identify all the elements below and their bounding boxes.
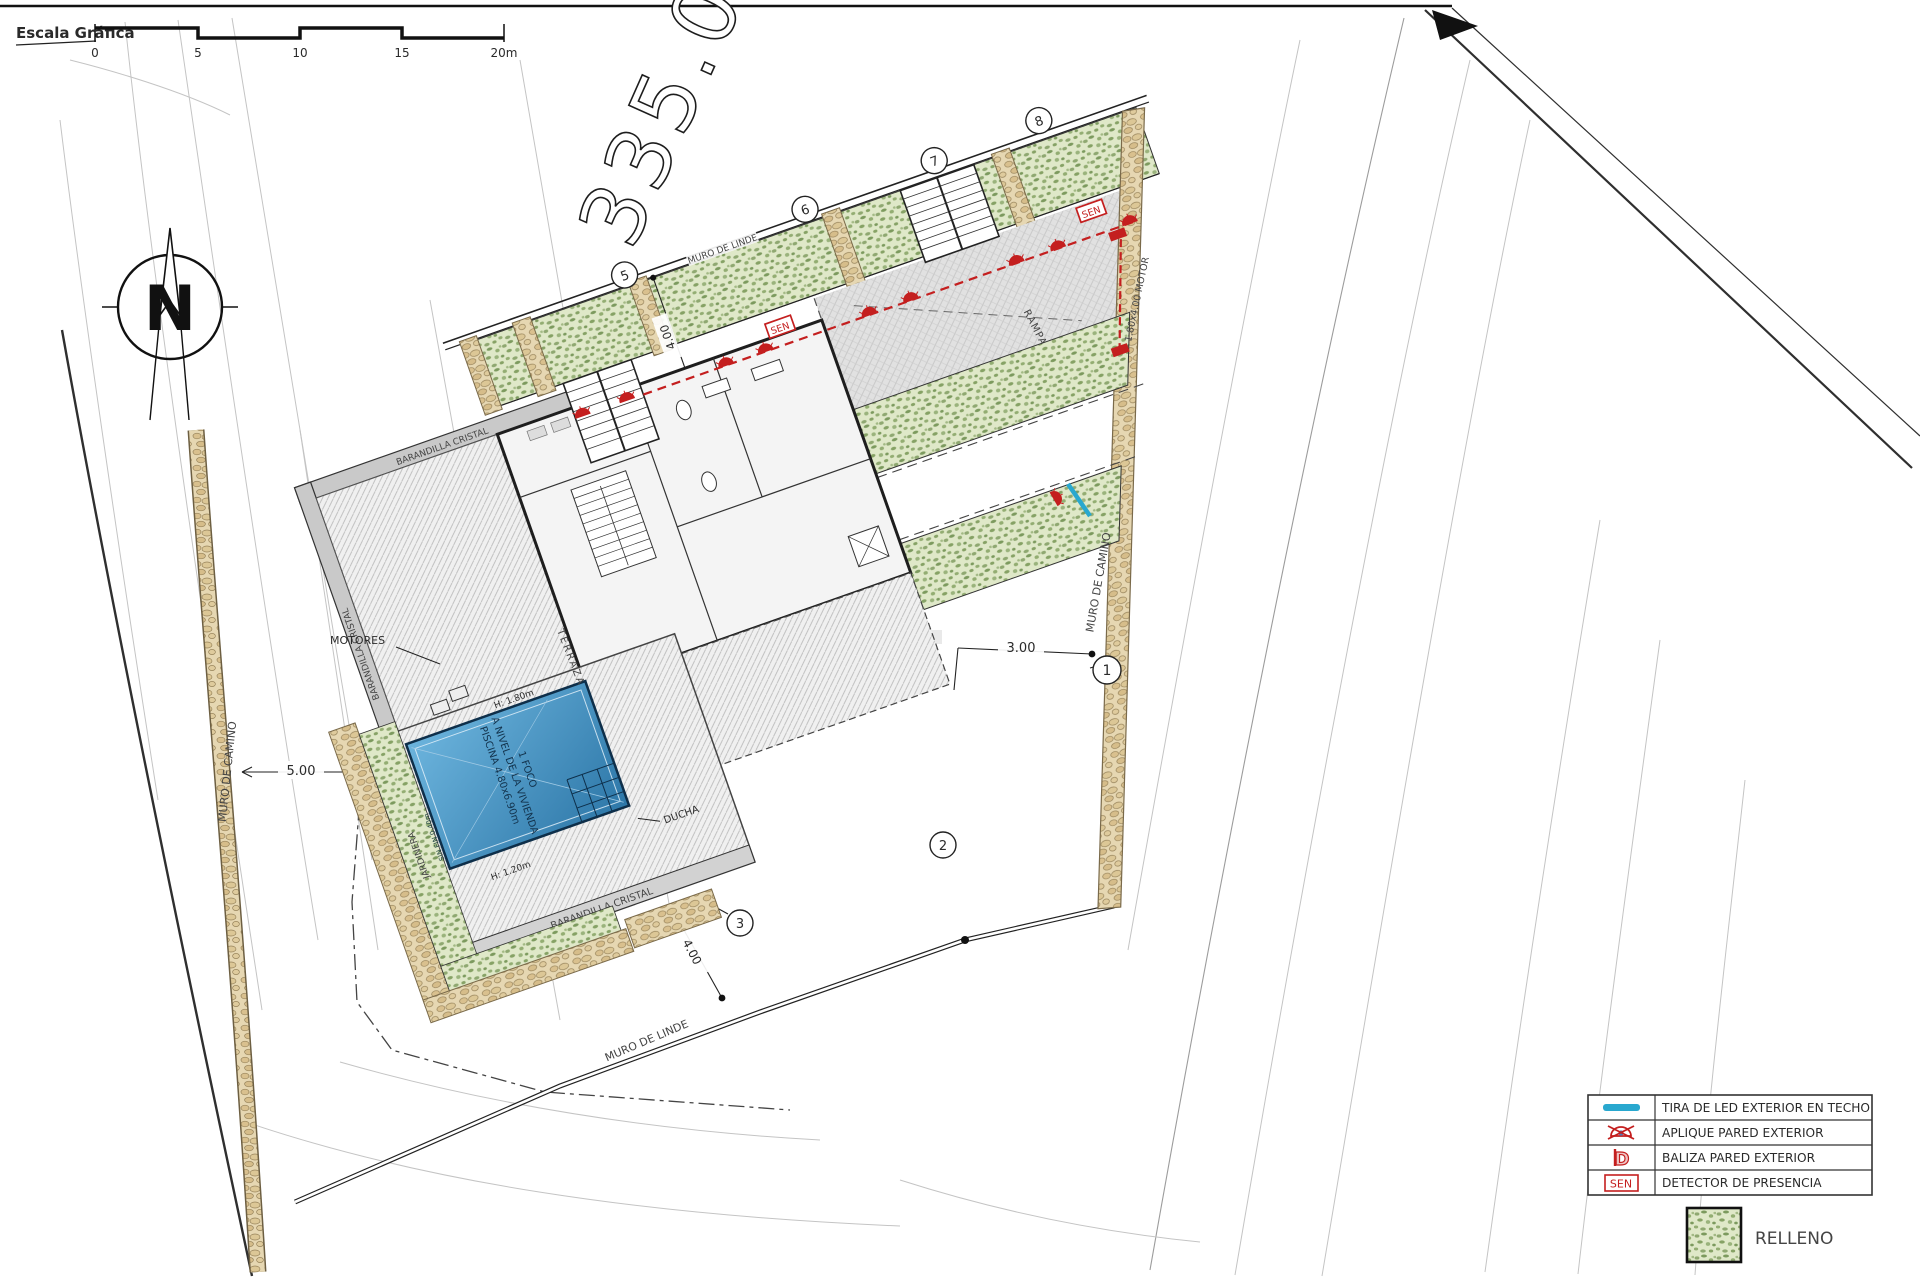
led-strip-icon <box>1603 1104 1640 1111</box>
dimension-right-strip: 3.00 <box>954 638 1095 690</box>
scale-tick-10: 10 <box>292 46 307 60</box>
scale-tick-5: 5 <box>194 46 202 60</box>
marker-2-number: 2 <box>939 839 947 854</box>
relleno-legend: RELLENO <box>1687 1208 1833 1262</box>
boundary-marker-2: 2 <box>930 832 956 858</box>
boundary-marker-8: 8 <box>1022 104 1055 137</box>
marker-1-number: 1 <box>1103 663 1112 679</box>
sen-icon-text: SEN <box>1610 1178 1632 1191</box>
motores-label: MOTORES <box>330 634 385 647</box>
scale-tick-0: 0 <box>91 46 99 60</box>
legend: TIRA DE LED EXTERIOR EN TECHO APLIQUE PA… <box>1588 1095 1872 1195</box>
plot-elevation-number: 335.0 <box>560 0 766 261</box>
legend-label-led: TIRA DE LED EXTERIOR EN TECHO <box>1661 1101 1870 1115</box>
boundary-marker-7: 7 <box>918 144 951 177</box>
beacon-icon-letter: D <box>1615 1149 1630 1170</box>
left-boundary-wall <box>196 430 258 1272</box>
building-frame: MURO DE LINDE 4.00 5 6 7 8 <box>211 72 1398 1136</box>
north-arrow: N <box>102 228 238 420</box>
site-plan-drawing: 335.0 Escala Gráfica 0 5 10 15 20m N MUR… <box>0 0 1920 1280</box>
site-plan-sheet: 335.0 Escala Gráfica 0 5 10 15 20m N MUR… <box>0 0 1920 1280</box>
legend-label-baliza: BALIZA PARED EXTERIOR <box>1662 1151 1816 1165</box>
scale-tick-20: 20m <box>491 46 518 60</box>
scale-bar: Escala Gráfica 0 5 10 15 20m <box>16 24 517 60</box>
legend-label-detector: DETECTOR DE PRESENCIA <box>1662 1176 1822 1190</box>
beacon-icon: D <box>1615 1149 1630 1170</box>
boundary-marker-1: 1 <box>1090 656 1121 684</box>
dim-5-00: 5.00 <box>287 764 316 779</box>
legend-label-aplique: APLIQUE PARED EXTERIOR <box>1662 1126 1824 1140</box>
dim-3-00: 3.00 <box>1007 641 1036 656</box>
relleno-label: RELLENO <box>1755 1229 1833 1249</box>
marker-3-number: 3 <box>736 917 744 932</box>
relleno-swatch <box>1687 1208 1741 1262</box>
scale-tick-15: 15 <box>394 46 409 60</box>
north-letter: N <box>144 272 196 345</box>
road-arrow-wedge <box>1432 10 1478 40</box>
sen-box-icon: SEN <box>1605 1175 1638 1191</box>
